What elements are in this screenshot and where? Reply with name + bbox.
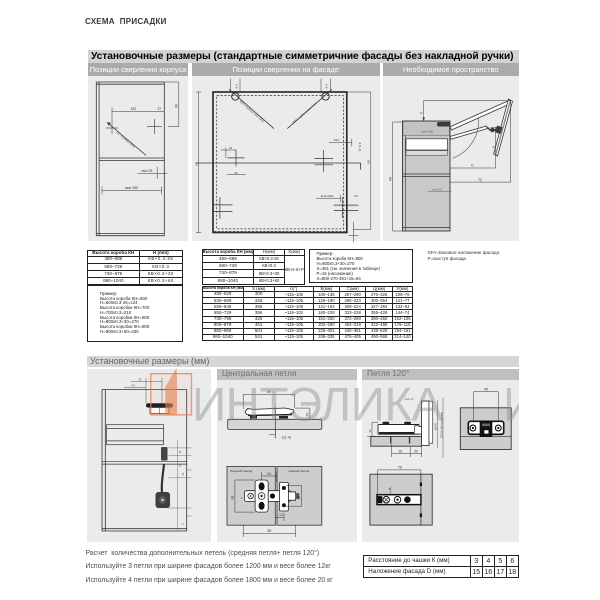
- svg-text:ИНТЭЛИКА: ИНТЭЛИКА: [192, 379, 444, 432]
- svg-text:И: И: [503, 379, 537, 432]
